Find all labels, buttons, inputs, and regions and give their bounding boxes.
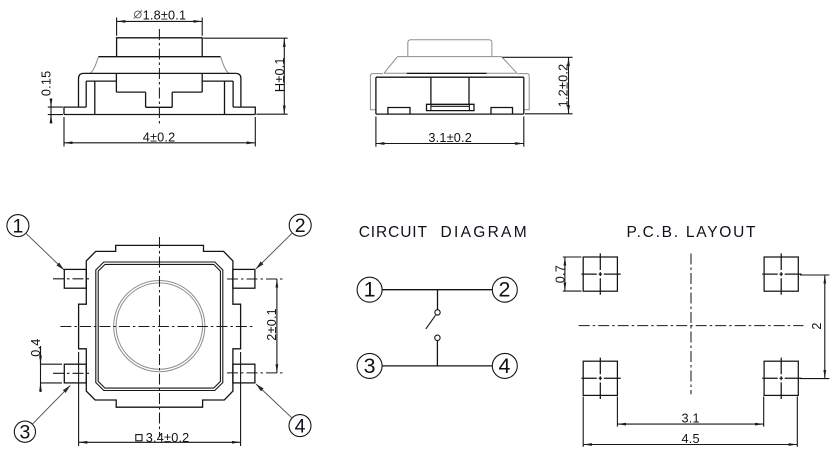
- svg-text:0.4: 0.4: [29, 338, 43, 356]
- svg-text:0.15: 0.15: [40, 71, 54, 97]
- svg-text:2: 2: [498, 278, 510, 302]
- svg-text:P.C.B. LAYOUT: P.C.B. LAYOUT: [627, 224, 758, 241]
- svg-text:CIRCUIT: CIRCUIT: [359, 224, 428, 241]
- svg-text:1: 1: [364, 278, 376, 302]
- svg-text:1.8±0.1: 1.8±0.1: [143, 8, 187, 22]
- svg-text:3.1: 3.1: [681, 411, 699, 425]
- svg-text:H±0.1: H±0.1: [273, 57, 287, 92]
- svg-text:DIAGRAM: DIAGRAM: [440, 224, 528, 241]
- svg-text:4: 4: [295, 415, 306, 437]
- svg-text:4.5: 4.5: [681, 432, 699, 446]
- svg-text:0.7: 0.7: [553, 265, 567, 283]
- svg-text:3.4±0.2: 3.4±0.2: [146, 431, 190, 445]
- svg-text:3.1±0.2: 3.1±0.2: [428, 131, 472, 145]
- svg-text:4: 4: [498, 354, 510, 378]
- svg-text:2: 2: [295, 215, 306, 237]
- svg-text:2: 2: [810, 322, 824, 329]
- svg-text:3: 3: [19, 422, 30, 444]
- svg-text:2±0.1: 2±0.1: [265, 308, 279, 341]
- svg-text:1: 1: [12, 215, 23, 237]
- svg-text:4±0.2: 4±0.2: [143, 131, 176, 145]
- svg-text:1.2±0.2: 1.2±0.2: [556, 64, 570, 108]
- svg-text:3: 3: [364, 354, 376, 378]
